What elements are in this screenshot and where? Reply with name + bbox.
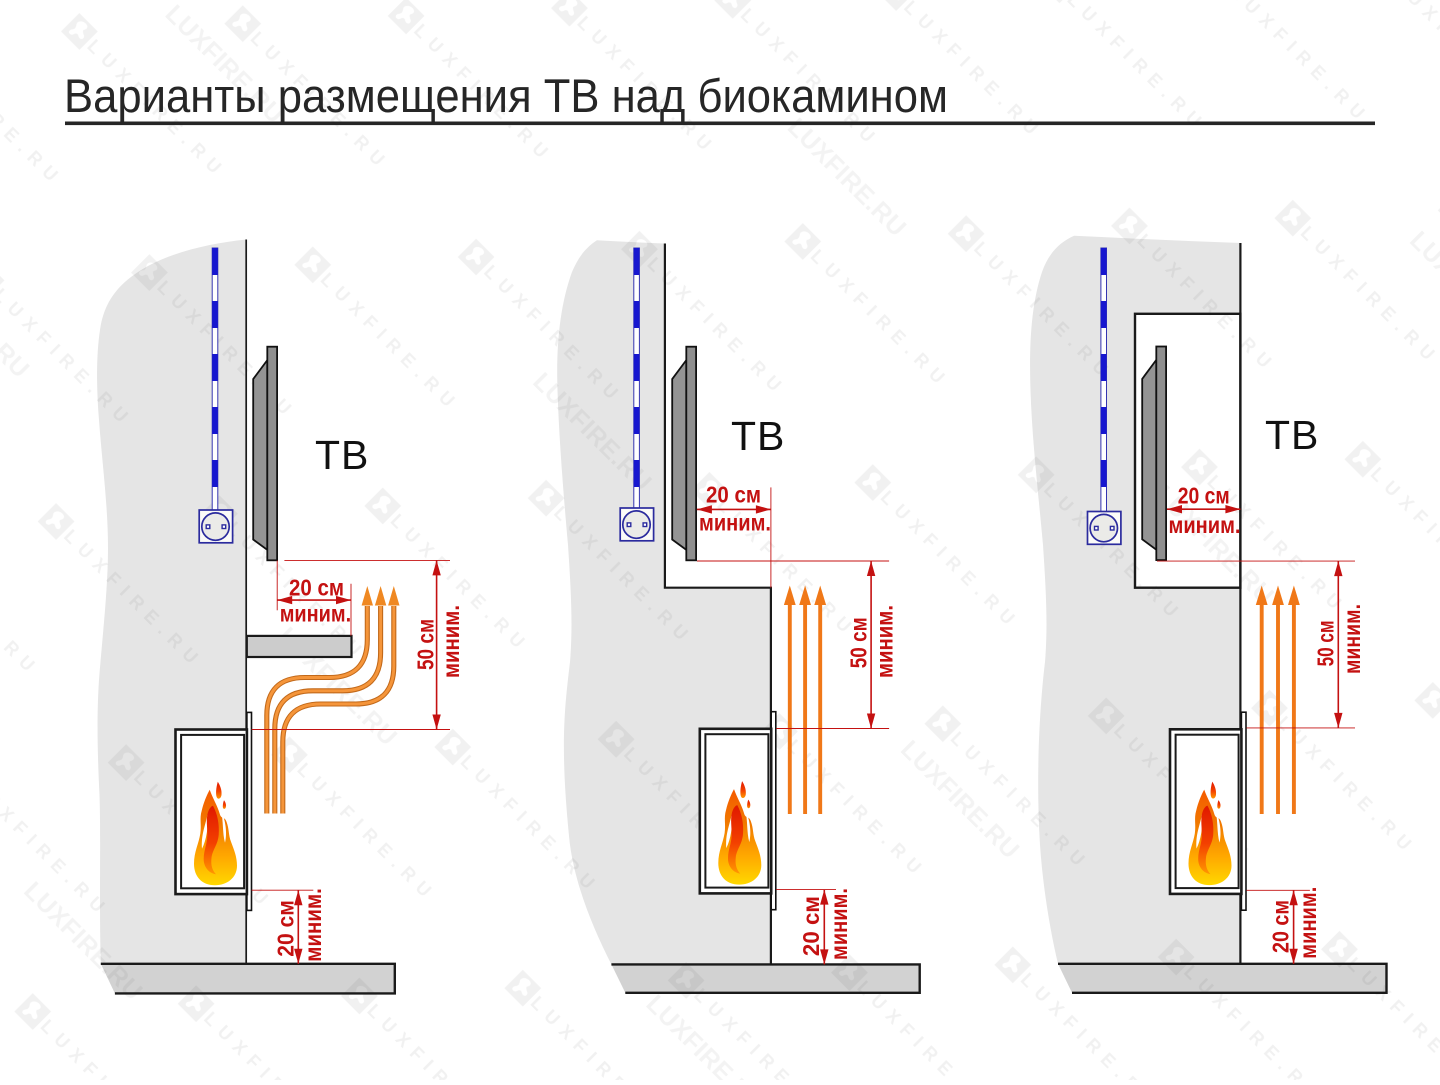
svg-text:50 см: 50 см	[413, 619, 439, 670]
svg-text:миним.: миним.	[1295, 887, 1321, 959]
svg-text:50 см: 50 см	[1313, 620, 1339, 666]
svg-text:20 см: 20 см	[273, 900, 299, 957]
svg-text:миним.: миним.	[826, 888, 852, 960]
svg-text:миним.: миним.	[438, 605, 464, 678]
svg-text:20 см: 20 см	[798, 896, 824, 956]
svg-text:миним.: миним.	[699, 510, 771, 536]
svg-text:20 см: 20 см	[1178, 483, 1230, 509]
svg-text:миним.: миним.	[872, 605, 898, 678]
svg-text:20 см: 20 см	[1267, 900, 1293, 953]
svg-text:50 см: 50 см	[846, 617, 872, 668]
svg-text:ТВ: ТВ	[1265, 412, 1319, 458]
svg-text:миним.: миним.	[280, 601, 352, 627]
svg-text:ТВ: ТВ	[731, 413, 785, 459]
svg-text:миним.: миним.	[1169, 512, 1241, 538]
svg-text:20 см: 20 см	[289, 575, 344, 601]
svg-text:20 см: 20 см	[706, 481, 761, 507]
svg-text:ТВ: ТВ	[315, 432, 369, 478]
svg-text:миним.: миним.	[1339, 604, 1365, 674]
svg-text:миним.: миним.	[300, 888, 326, 962]
